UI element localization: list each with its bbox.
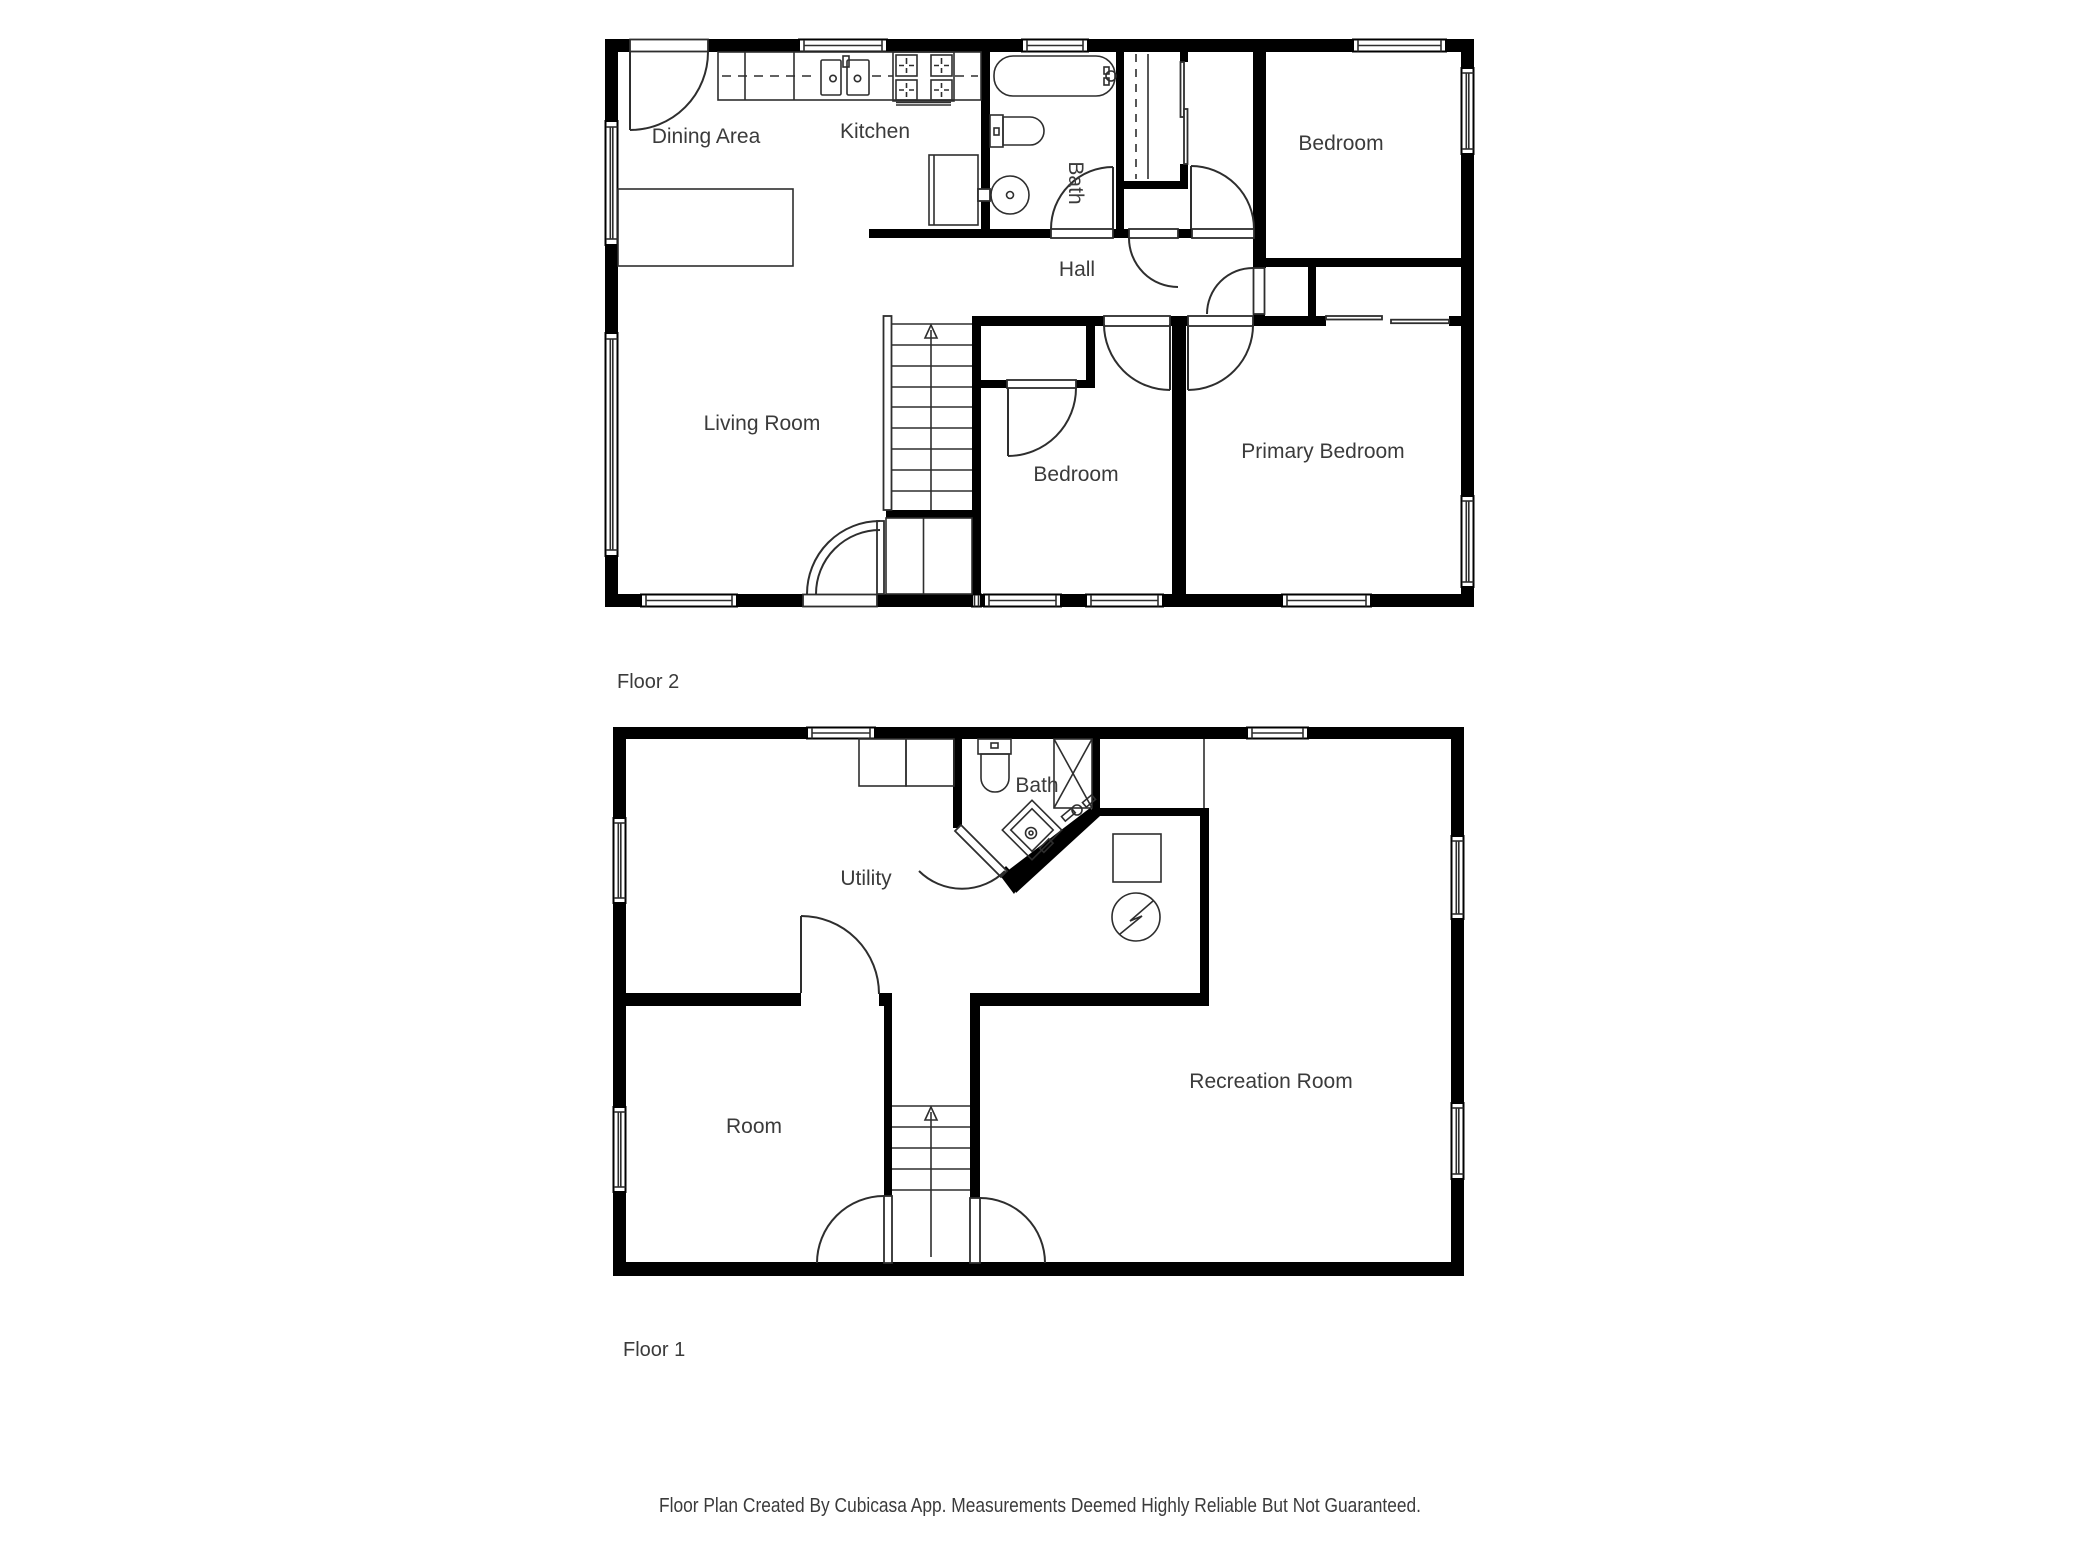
svg-text:Living Room: Living Room: [704, 412, 821, 435]
svg-text:Bedroom: Bedroom: [1033, 463, 1118, 486]
svg-text:Kitchen: Kitchen: [840, 120, 910, 143]
svg-text:Floor 1: Floor 1: [623, 1339, 685, 1361]
svg-text:Room: Room: [726, 1115, 782, 1138]
svg-text:Utility: Utility: [840, 867, 892, 890]
svg-text:Floor Plan Created By Cubicasa: Floor Plan Created By Cubicasa App. Meas…: [659, 1495, 1421, 1517]
svg-text:Hall: Hall: [1059, 258, 1095, 281]
svg-text:Bath: Bath: [1064, 161, 1087, 204]
svg-text:Primary Bedroom: Primary Bedroom: [1241, 440, 1404, 463]
svg-text:Bedroom: Bedroom: [1298, 132, 1383, 155]
svg-text:Dining Area: Dining Area: [652, 125, 761, 148]
svg-text:Recreation Room: Recreation Room: [1189, 1070, 1352, 1093]
svg-text:Floor 2: Floor 2: [617, 671, 679, 693]
svg-text:Bath: Bath: [1015, 774, 1058, 797]
